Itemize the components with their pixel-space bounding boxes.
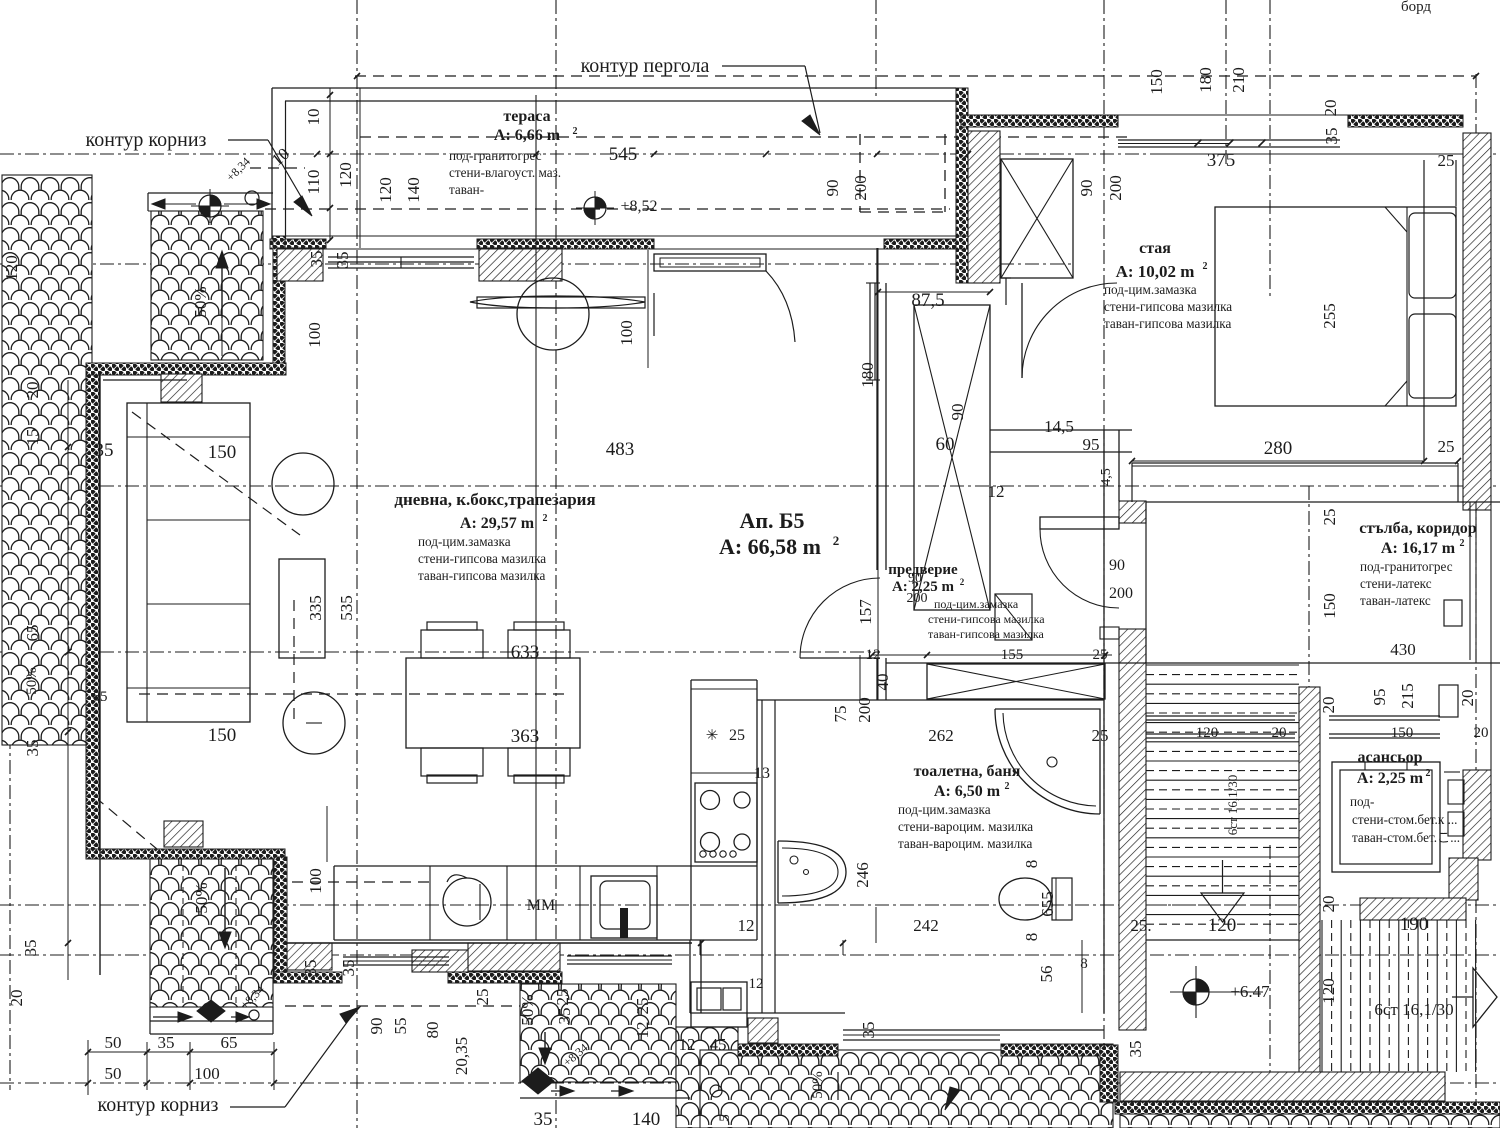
svg-text:А: 10,02 m: А: 10,02 m [1116,262,1195,281]
svg-text:363: 363 [511,726,540,747]
svg-text:тераса: тераса [503,108,550,125]
svg-text:180: 180 [858,362,877,388]
svg-text:90: 90 [908,571,922,586]
svg-text:35: 35 [307,251,326,268]
svg-text:483: 483 [606,439,635,460]
svg-text:90: 90 [948,404,967,421]
svg-text:25.: 25. [1130,916,1151,935]
svg-text:375: 375 [1207,150,1236,171]
svg-text:65: 65 [221,1033,238,1052]
svg-text:стълба, коридор: стълба, коридор [1359,520,1476,537]
svg-text:20: 20 [1272,725,1287,741]
svg-text:под-гранитогрес: под-гранитогрес [1360,559,1453,574]
svg-text:стая: стая [1139,240,1171,257]
svg-text:13: 13 [754,765,770,782]
svg-text:120: 120 [2,255,21,281]
svg-text:150: 150 [1391,725,1414,741]
svg-text:20: 20 [7,990,26,1007]
svg-text:50%: 50% [192,882,211,913]
svg-text:65: 65 [93,689,108,705]
svg-text:80: 80 [423,1022,442,1039]
svg-text:60: 60 [936,434,955,455]
svg-text:210: 210 [1229,67,1248,93]
svg-text:дневна, к.бокс,трапезария: дневна, к.бокс,трапезария [394,490,595,509]
svg-text:200: 200 [851,175,870,201]
svg-text:75: 75 [831,706,850,723]
svg-text:А: 6,66 m: А: 6,66 m [494,127,561,144]
svg-text:8: 8 [1080,956,1088,972]
svg-text:стени-вароцим. мазилка: стени-вароцим. мазилка [898,819,1033,834]
svg-text:150: 150 [208,442,237,463]
svg-text:120: 120 [376,177,395,203]
svg-text:контур корниз: контур корниз [98,1094,219,1116]
svg-text:6ст 16,1/30: 6ст 16,1/30 [1225,775,1240,836]
svg-text:2: 2 [543,513,548,524]
svg-text:180: 180 [1196,67,1215,93]
svg-text:контур корниз: контур корниз [86,129,207,151]
svg-text:20: 20 [23,382,42,399]
svg-text:120: 120 [1196,725,1219,741]
svg-text:95: 95 [1083,435,1100,454]
svg-text:150: 150 [1320,593,1339,619]
svg-text:А: 2,25 m: А: 2,25 m [1357,770,1424,787]
svg-text:2: 2 [960,577,965,587]
svg-text:50%: 50% [810,1071,826,1099]
svg-text:35: 35 [158,1033,175,1052]
svg-text:35: 35 [21,940,40,957]
svg-text:100: 100 [305,322,324,348]
svg-text:стени-гипсова мазилка: стени-гипсова мазилка [418,551,546,566]
svg-text:+6.47: +6.47 [1230,982,1270,1001]
svg-text:15: 15 [23,429,42,446]
svg-text:+8,52: +8,52 [620,198,657,215]
svg-text:20: 20 [1319,697,1338,714]
svg-text:35: 35 [1322,128,1341,145]
svg-text:335: 335 [306,595,325,621]
svg-text:40: 40 [873,674,892,691]
svg-text:стени-гипсова мазилка: стени-гипсова мазилка [928,612,1045,626]
svg-text:140: 140 [632,1109,661,1128]
svg-text:35: 35 [1126,1041,1145,1058]
svg-text:655: 655 [1038,891,1057,917]
svg-text:25: 25 [1320,509,1339,526]
svg-text:12: 12 [679,1035,696,1054]
svg-text:20,35: 20,35 [452,1037,471,1075]
svg-text:87,5: 87,5 [911,290,944,311]
svg-text:633: 633 [511,642,540,663]
svg-text:2: 2 [1460,538,1465,549]
svg-text:90: 90 [367,1018,386,1035]
svg-text:6ст 16,1/30: 6ст 16,1/30 [1374,1000,1453,1019]
svg-text:таван-гипсова мазилка: таван-гипсова мазилка [418,568,545,583]
svg-text:35: 35 [534,1109,553,1128]
svg-text:50%: 50% [518,994,537,1025]
svg-text:200: 200 [855,697,874,723]
svg-text:под-: под- [1350,794,1374,809]
svg-text:50%: 50% [191,286,210,317]
svg-text:асансьор: асансьор [1358,749,1423,766]
svg-text:тоалетна, баня: тоалетна, баня [914,763,1021,780]
svg-text:12: 12 [988,482,1005,501]
svg-text:25: 25 [1438,151,1455,170]
svg-text:таван-латекс: таван-латекс [1360,593,1431,608]
svg-text:Ап. Б5: Ап. Б5 [739,508,804,533]
svg-text:8: 8 [1022,933,1041,942]
svg-text:246: 246 [853,862,872,888]
svg-text:25: 25 [1438,437,1455,456]
svg-text:14,5: 14,5 [1044,417,1074,436]
svg-text:35: 35 [555,1008,574,1025]
svg-text:50: 50 [105,1064,122,1083]
svg-text:120: 120 [1319,978,1338,1004]
svg-text:таван-гипсова мазилка: таван-гипсова мазилка [1104,316,1231,331]
svg-text:280: 280 [1264,438,1293,459]
svg-text:5: 5 [717,1114,733,1122]
svg-text:35: 35 [95,440,114,461]
svg-text:100: 100 [306,868,325,894]
svg-text:2: 2 [833,533,840,548]
svg-text:35: 35 [23,740,42,757]
svg-text:242: 242 [913,916,939,935]
svg-text:157: 157 [856,599,875,625]
svg-text:25: 25 [1092,726,1109,745]
svg-text:545: 545 [609,144,638,165]
svg-text:под-цим.замазка: под-цим.замазка [934,597,1019,611]
svg-text:таван-гипсова мазилка: таван-гипсова мазилка [928,627,1045,641]
svg-text:стени-латекс: стени-латекс [1360,576,1432,591]
svg-text:25: 25 [553,989,572,1006]
svg-text:под-цим.замазка: под-цим.замазка [898,802,991,817]
svg-text:стени-стом.бет.к ...: стени-стом.бет.к ... [1352,812,1457,827]
svg-text:таван-стом.бет.こ...: таван-стом.бет.こ... [1352,830,1460,845]
svg-text:55: 55 [391,1018,410,1035]
svg-text:20: 20 [1319,896,1338,913]
svg-text:20: 20 [1474,725,1489,741]
svg-text:2: 2 [1426,768,1431,779]
svg-text:2: 2 [1203,261,1208,272]
svg-text:430: 430 [1390,640,1416,659]
svg-text:255: 255 [1320,303,1339,329]
svg-text:100: 100 [617,320,636,346]
svg-text:стени-влагоуст. маз.: стени-влагоуст. маз. [449,165,561,180]
svg-text:А: 29,57 m: А: 29,57 m [460,515,535,532]
svg-text:100: 100 [194,1064,220,1083]
svg-text:под-цим.замазка: под-цим.замазка [418,534,511,549]
svg-text:190: 190 [1400,914,1429,935]
svg-text:56: 56 [1037,966,1056,983]
svg-text:А: 16,17 m: А: 16,17 m [1381,540,1456,557]
svg-text:535: 535 [337,595,356,621]
svg-text:ММ: ММ [527,897,555,914]
svg-text:2: 2 [573,126,578,137]
svg-text:предверие: предверие [888,562,958,578]
svg-text:50: 50 [105,1033,122,1052]
svg-text:под-цим.замазка: под-цим.замазка [1104,282,1197,297]
svg-text:150: 150 [208,725,237,746]
svg-text:35: 35 [301,960,320,977]
svg-text:25: 25 [729,727,745,744]
svg-text:65: 65 [23,625,42,642]
svg-text:215: 215 [1398,683,1417,709]
svg-text:под-гранитогрес: под-гранитогрес [449,148,542,163]
svg-text:8: 8 [1022,860,1041,869]
svg-text:таван-вароцим. мазилка: таван-вароцим. мазилка [898,836,1032,851]
svg-text:20: 20 [1321,100,1340,117]
svg-text:борд: борд [1401,0,1431,15]
svg-text:12: 12 [633,1022,652,1039]
svg-text:стени-гипсова мазилка: стени-гипсова мазилка [1104,299,1232,314]
svg-text:25: 25 [633,998,652,1015]
svg-text:140: 140 [404,177,423,203]
svg-text:90: 90 [1077,180,1096,197]
svg-text:35: 35 [333,252,352,269]
svg-text:200: 200 [1109,585,1133,602]
svg-text:262: 262 [928,726,954,745]
svg-text:90: 90 [823,180,842,197]
svg-text:90: 90 [1109,557,1125,574]
svg-text:45: 45 [710,1035,727,1054]
svg-text:4,5: 4,5 [1099,468,1114,486]
svg-text:10: 10 [304,109,323,126]
svg-text:120: 120 [336,162,355,188]
svg-text:2: 2 [1005,781,1010,792]
svg-text:200: 200 [1106,175,1125,201]
svg-text:35: 35 [339,960,358,977]
svg-text:12: 12 [749,976,764,992]
svg-text:110: 110 [304,170,323,195]
svg-text:А: 6,50 m: А: 6,50 m [934,783,1001,800]
svg-text:35: 35 [859,1022,878,1039]
svg-text:контур пергола: контур пергола [581,55,710,77]
svg-text:✳: ✳ [706,728,719,744]
svg-text:12: 12 [738,916,755,935]
svg-text:150: 150 [1147,69,1166,95]
svg-text:95: 95 [1370,689,1389,706]
svg-text:20: 20 [1458,690,1477,707]
svg-text:А: 66,58 m: А: 66,58 m [719,534,821,559]
svg-text:155: 155 [1001,647,1024,663]
svg-text:таван-: таван- [449,182,484,197]
svg-text:50%: 50% [24,667,40,695]
svg-text:25: 25 [473,989,492,1006]
svg-text:200: 200 [907,591,928,606]
svg-text:120: 120 [1208,915,1237,936]
